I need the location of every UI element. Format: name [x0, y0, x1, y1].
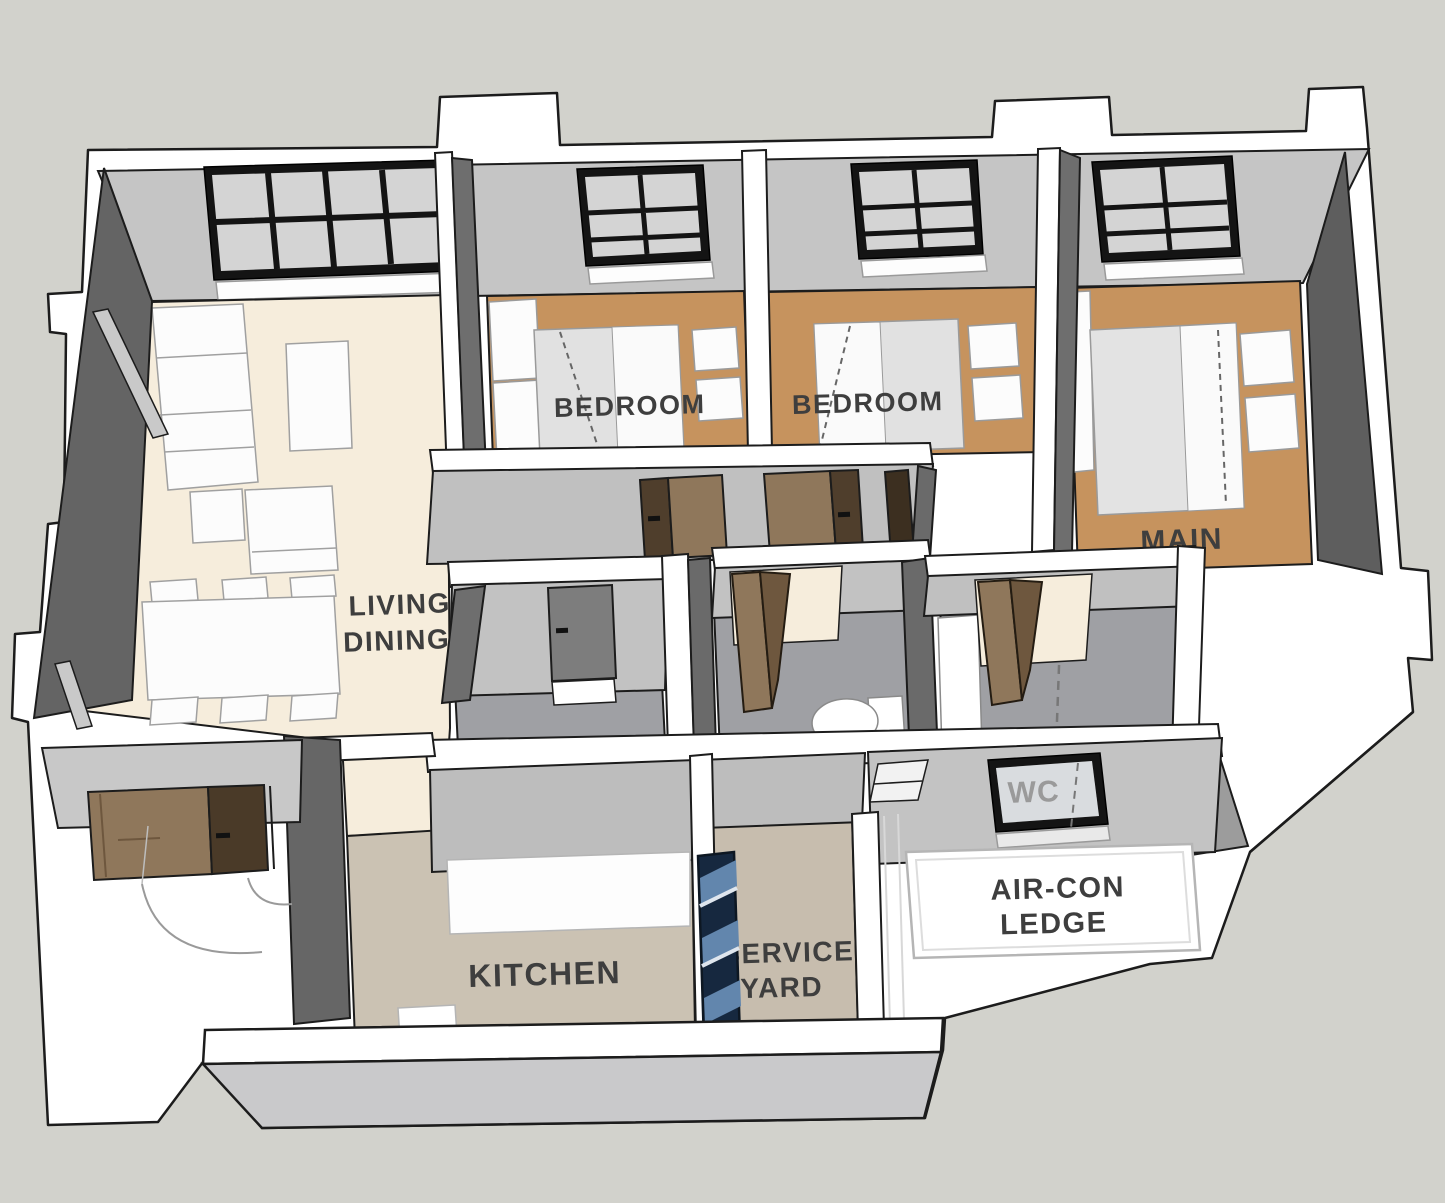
wc-window: WC: [988, 753, 1110, 848]
service-yard-louvre-window: [698, 852, 741, 1042]
back-wall: [98, 149, 1369, 301]
partition-bedroom2-main: [1032, 148, 1080, 552]
room-label-aircon-line1: AIR-CON: [990, 871, 1125, 907]
room-label-living-line1: LIVING: [348, 587, 451, 622]
room-label-service-line1: SERVICE: [721, 935, 855, 969]
room-label-living-line2: DINING: [343, 623, 451, 658]
room-label-service-line2: YARD: [740, 971, 824, 1004]
floor-plan-canvas: LIVING DINING BEDROOM BEDROOM MAIN HOUSE…: [0, 0, 1445, 1203]
yard-east-band: [852, 812, 884, 1032]
room-label-bedroom2: BEDROOM: [792, 386, 944, 420]
room-label-bedroom1: BEDROOM: [554, 389, 706, 423]
bedroom1-window: [577, 165, 714, 284]
bottom-wall: [203, 1018, 943, 1128]
bedroom2-door: [764, 470, 863, 554]
room-label-aircon-line2: LEDGE: [1000, 907, 1108, 942]
shelter-door: [548, 585, 616, 705]
floor-plan-stage: LIVING DINING BEDROOM BEDROOM MAIN HOUSE…: [0, 0, 1445, 1203]
room-label-kitchen: KITCHEN: [468, 954, 622, 994]
entrance-door: [88, 785, 274, 880]
main-window: [1092, 156, 1244, 280]
kitchen-counter: [447, 852, 690, 934]
service-yard-back-wall: [700, 753, 865, 828]
living-window: [204, 160, 457, 300]
